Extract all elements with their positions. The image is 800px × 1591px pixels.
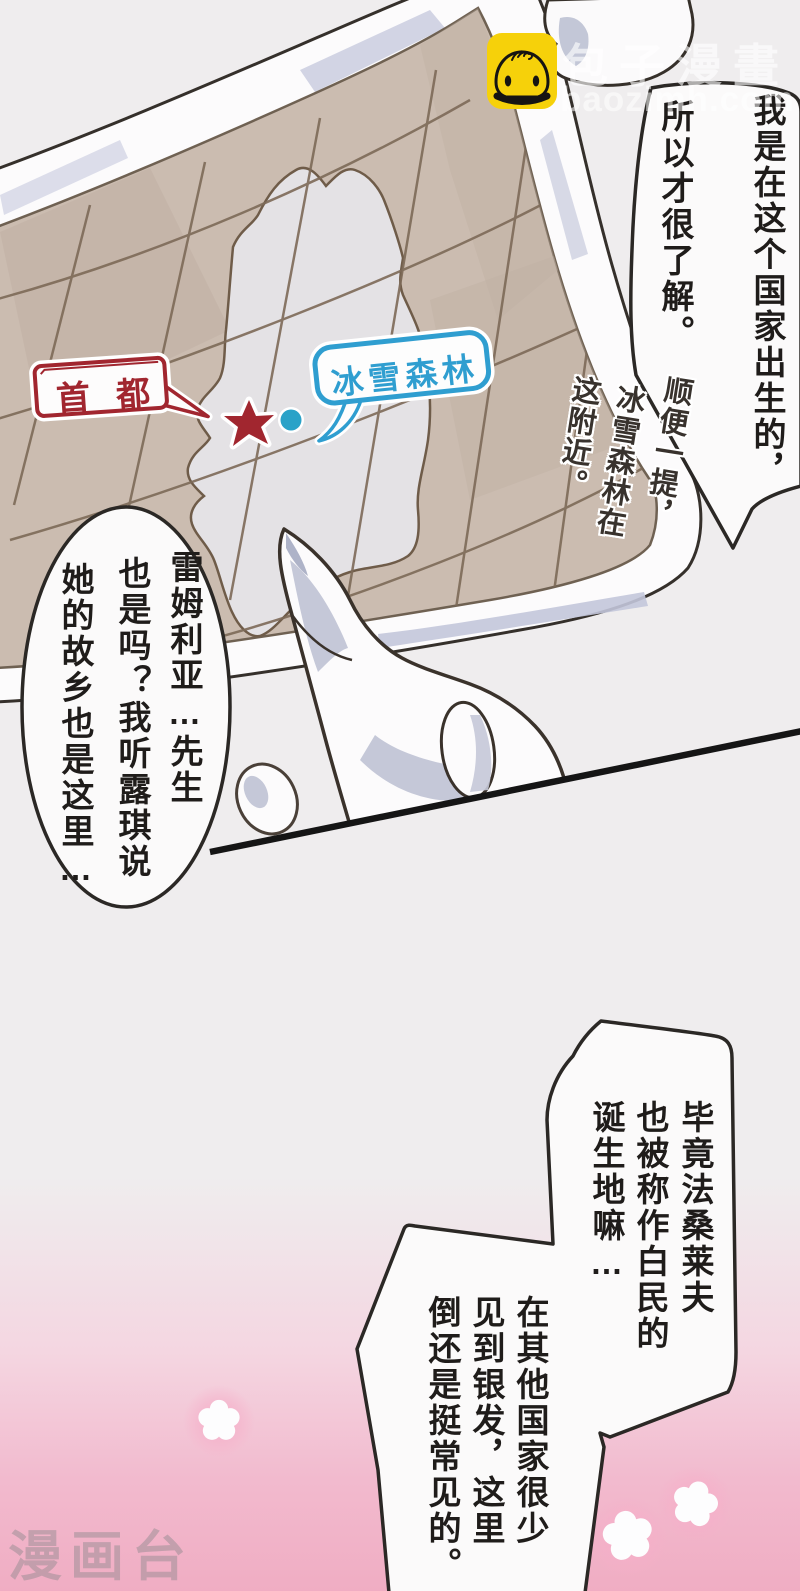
forest-dot-marker [278, 407, 304, 433]
capital-tag-label: 首都 [54, 364, 177, 421]
bubble-left-col3: 她的故乡也是这里… [51, 562, 99, 890]
bubble-bottom1-col3: 诞生地嘛… [582, 1100, 630, 1284]
bubble-bottom2-col2: 见到银发，这里 [462, 1295, 510, 1547]
bubble-top-right-col2: 所以才很了解。 [651, 99, 699, 351]
watermark-corner: 漫画台 [8, 1512, 194, 1591]
bubble-left-col1: 雷姆利亚…先生 [160, 550, 208, 806]
bubble-bottom1-col1: 毕竟法桑莱夫 [671, 1100, 719, 1316]
comic-page: 我是在这个国家出生的， 所以才很了解。 顺便一提， 冰雪森林在 这附近。 雷姆利… [0, 0, 800, 1591]
baozi-bun-icon [487, 33, 557, 109]
bubble-bottom1-col2: 也被称作白民的 [626, 1100, 674, 1352]
bubble-left-col2: 也是吗？我听露琪说 [108, 556, 156, 880]
bubble-bottom2-col1: 在其他国家很少 [506, 1295, 554, 1547]
watermark-site-url: baozimh.com [560, 80, 795, 120]
bubble-bottom2-col3: 倒还是挺常见的。 [418, 1295, 466, 1583]
bubble-top-right-col1: 我是在这个国家出生的， [743, 93, 791, 489]
